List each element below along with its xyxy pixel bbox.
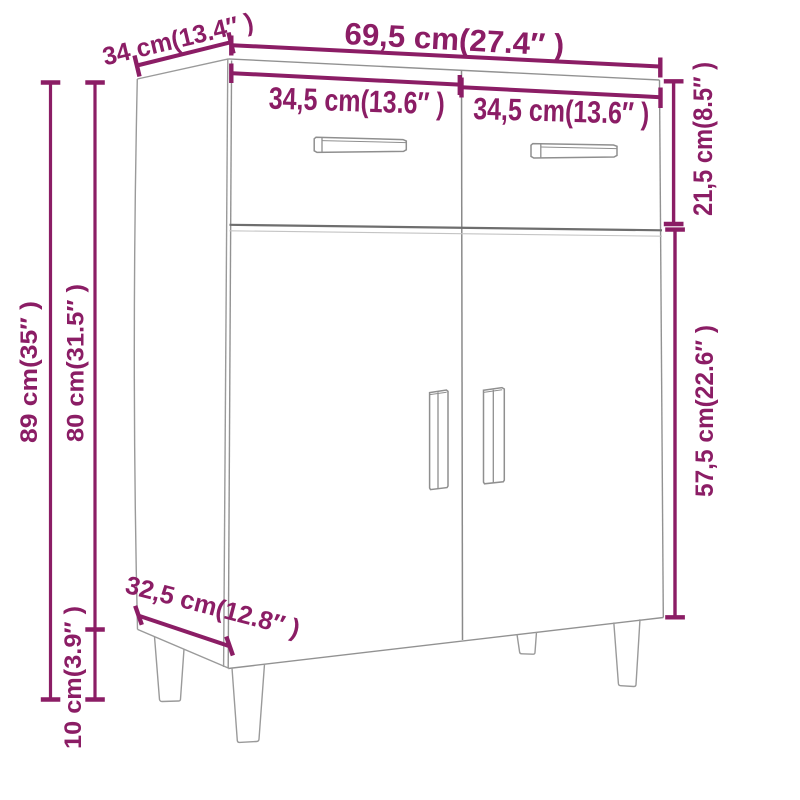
svg-text:89 cm(35″ ): 89 cm(35″ ) [16, 301, 43, 443]
svg-text:10 cm(3.9″ ): 10 cm(3.9″ ) [60, 606, 87, 749]
svg-text:34,5 cm(13.6″ ): 34,5 cm(13.6″ ) [473, 91, 650, 131]
svg-text:80 cm(31.5″ ): 80 cm(31.5″ ) [63, 284, 90, 442]
svg-text:34,5 cm(13.6″ ): 34,5 cm(13.6″ ) [268, 81, 445, 122]
svg-text:57,5 cm(22.6″ ): 57,5 cm(22.6″ ) [691, 325, 719, 497]
svg-text:21,5 cm(8.5″ ): 21,5 cm(8.5″ ) [688, 62, 718, 216]
